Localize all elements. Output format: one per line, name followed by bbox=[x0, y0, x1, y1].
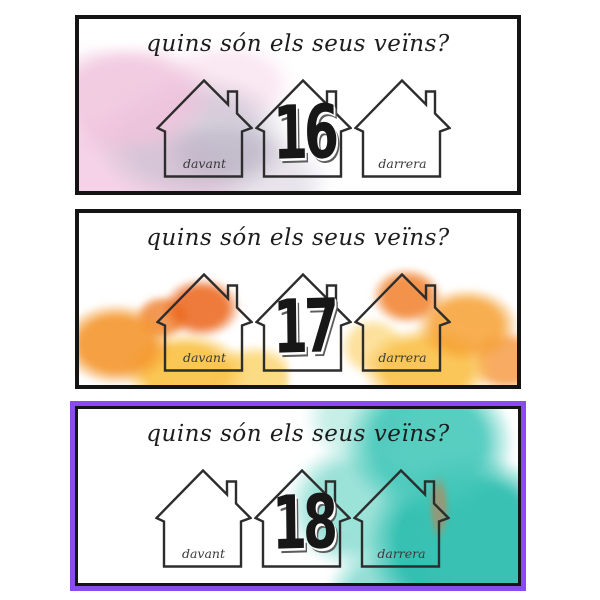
front-house-label: davant bbox=[156, 156, 253, 171]
house-front: davant bbox=[156, 273, 253, 372]
number-card-16[interactable]: quins són els seus veïns? davant 16 darr… bbox=[75, 15, 521, 195]
house-row: davant 17 darrera bbox=[156, 273, 451, 372]
house-number-value: 16 bbox=[272, 96, 335, 172]
number-card-18[interactable]: quins són els seus veïns? davant 18 darr… bbox=[75, 406, 521, 586]
front-house-label: davant bbox=[155, 546, 252, 561]
house-number: 18 bbox=[254, 469, 351, 568]
house-row: davant 18 darrera bbox=[155, 469, 450, 568]
house-number-value: 17 bbox=[272, 290, 335, 366]
back-house-label: darrera bbox=[354, 350, 451, 365]
house-number: 16 bbox=[255, 79, 352, 178]
house-number: 17 bbox=[255, 273, 352, 372]
house-row: davant 16 darrera bbox=[156, 79, 451, 178]
back-house-label: darrera bbox=[354, 156, 451, 171]
number-card-17[interactable]: quins són els seus veïns? davant 17 darr… bbox=[75, 209, 521, 389]
house-number-value: 18 bbox=[271, 486, 334, 562]
house-back: darrera bbox=[353, 469, 450, 568]
card-title: quins són els seus veïns? bbox=[79, 225, 517, 251]
back-house-label: darrera bbox=[353, 546, 450, 561]
front-house-label: davant bbox=[156, 350, 253, 365]
house-front: davant bbox=[155, 469, 252, 568]
house-back: darrera bbox=[354, 79, 451, 178]
house-front: davant bbox=[156, 79, 253, 178]
house-back: darrera bbox=[354, 273, 451, 372]
card-title: quins són els seus veïns? bbox=[78, 421, 518, 447]
worksheet-page: quins són els seus veïns? davant 16 darr… bbox=[0, 0, 600, 600]
card-title: quins són els seus veïns? bbox=[79, 31, 517, 57]
